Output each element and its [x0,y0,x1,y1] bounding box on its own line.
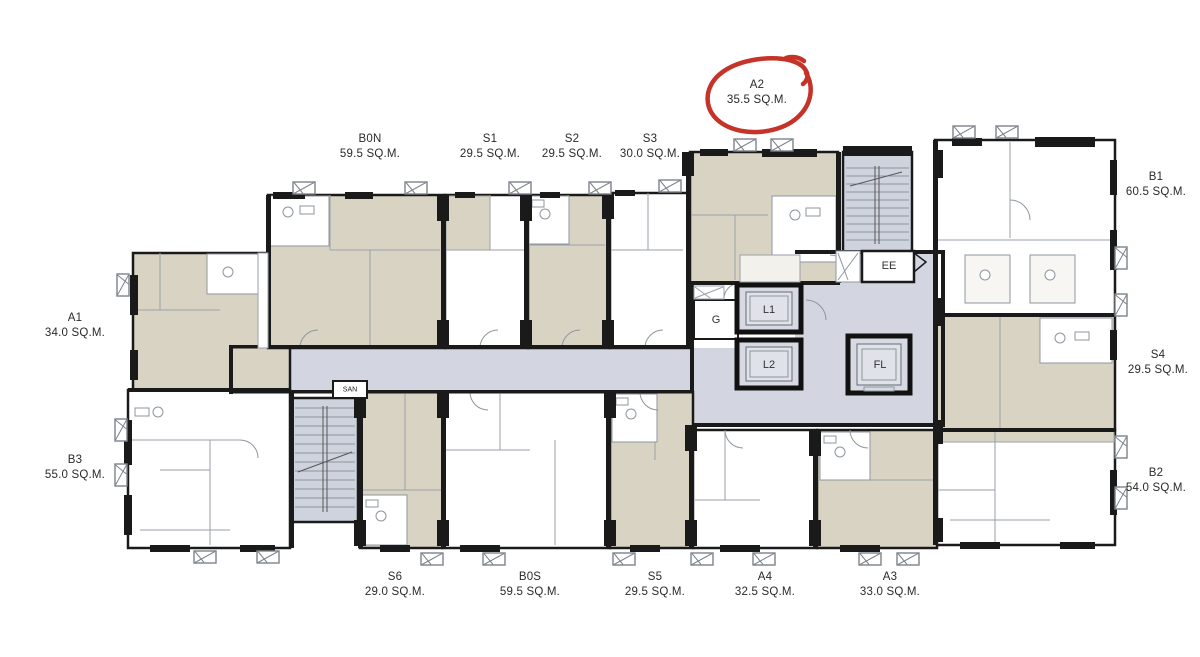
shaft [258,253,268,348]
unit-code: B3 [45,453,105,468]
garbage-room-label: G [712,314,721,326]
unit-code: S3 [620,132,680,147]
unit-area: 59.5 SQ.M. [340,147,400,162]
unit-area: 29.5 SQ.M. [542,147,602,162]
floor-plan-drawing [0,0,1200,657]
unit-label-b3: B3 55.0 SQ.M. [45,453,105,483]
unit-area: 55.0 SQ.M. [45,468,105,483]
unit-area: 60.5 SQ.M. [1126,185,1186,200]
unit-label-a3: A3 33.0 SQ.M. [860,570,920,600]
unit-label-s3: S3 30.0 SQ.M. [620,132,680,162]
unit-area: 34.0 SQ.M. [45,326,105,341]
lift-1-label: L1 [763,304,775,316]
unit-code: A3 [860,570,920,585]
unit-label-b1: B1 60.5 SQ.M. [1126,170,1186,200]
unit-area: 29.5 SQ.M. [1128,363,1188,378]
unit-area: 35.5 SQ.M. [727,93,787,108]
unit-code: S2 [542,132,602,147]
unit-code: B2 [1126,466,1186,481]
unit-label-b0s: B0S 59.5 SQ.M. [500,570,560,600]
unit-area: 29.5 SQ.M. [460,147,520,162]
unit-label-b0n: B0N 59.5 SQ.M. [340,132,400,162]
unit-area: 33.0 SQ.M. [860,585,920,600]
unit-label-a1: A1 34.0 SQ.M. [45,311,105,341]
floor-plan-page: A2 35.5 SQ.M. B0N 59.5 SQ.M. S1 29.5 SQ.… [0,0,1200,657]
unit-code: B1 [1126,170,1186,185]
unit-label-a2: A2 35.5 SQ.M. [727,78,787,108]
unit-code: B0S [500,570,560,585]
unit-area: 29.0 SQ.M. [365,585,425,600]
lift-2-label: L2 [763,359,775,371]
unit-label-s5: S5 29.5 SQ.M. [625,570,685,600]
unit-code: A4 [735,570,795,585]
fire-lift-label: FL [874,359,887,371]
unit-area: 30.0 SQ.M. [620,147,680,162]
unit-label-s6: S6 29.0 SQ.M. [365,570,425,600]
unit-code: S6 [365,570,425,585]
unit-area: 29.5 SQ.M. [625,585,685,600]
unit-label-b2: B2 54.0 SQ.M. [1126,466,1186,496]
unit-code: A1 [45,311,105,326]
unit-area: 59.5 SQ.M. [500,585,560,600]
unit-label-s4: S4 29.5 SQ.M. [1128,348,1188,378]
unit-area: 54.0 SQ.M. [1126,481,1186,496]
unit-code: S1 [460,132,520,147]
unit-code: S5 [625,570,685,585]
unit-label-s1: S1 29.5 SQ.M. [460,132,520,162]
unit-code: A2 [727,78,787,93]
unit-area: 32.5 SQ.M. [735,585,795,600]
service-room-label: SAN [343,387,357,394]
unit-code: B0N [340,132,400,147]
unit-label-s2: S2 29.5 SQ.M. [542,132,602,162]
electrical-room-label: EE [882,260,897,272]
unit-code: S4 [1128,348,1188,363]
stairwell-south [292,398,358,522]
unit-label-a4: A4 32.5 SQ.M. [735,570,795,600]
stairwell-north [843,146,912,253]
